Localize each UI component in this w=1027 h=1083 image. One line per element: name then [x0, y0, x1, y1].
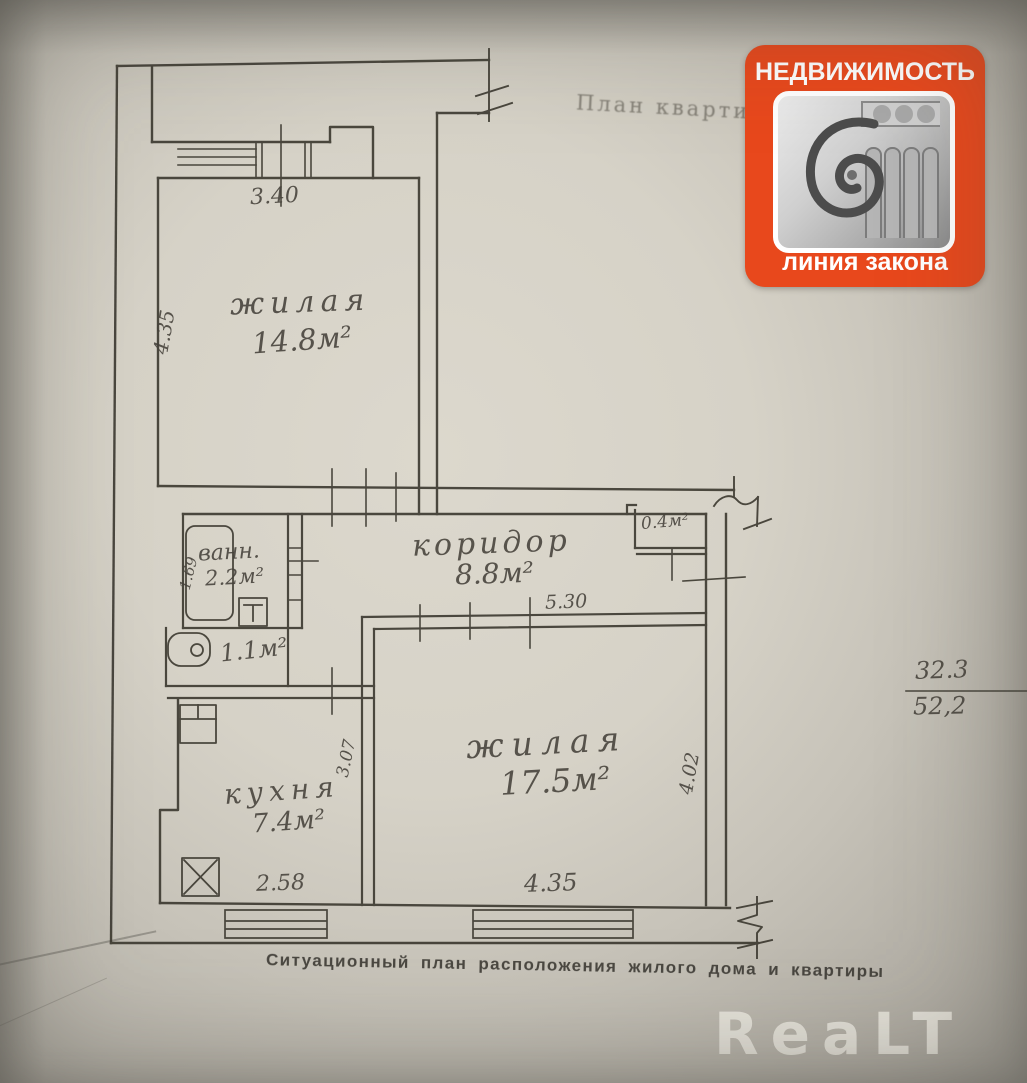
room-wc-area: 1.1м²	[219, 635, 289, 666]
room-bath-label: ванн.	[197, 540, 260, 565]
scanned-floor-plan-photo: План квартиры жилая 14.8м² 3.40 4.35 ван…	[0, 0, 1027, 1083]
agency-badge: НЕДВИЖИМОСТЬ линия закона	[745, 45, 985, 287]
dim-kitchen-width: 2.58	[256, 872, 306, 896]
ionic-column-capital-icon	[773, 91, 955, 253]
room-living1-label: жилая	[230, 286, 371, 321]
dim-living2-width: 4.35	[524, 870, 578, 896]
room-bath-area: 2.2м²	[204, 565, 264, 589]
room-corridor-area: 8.8м²	[455, 559, 535, 590]
area-summary-total: 52,2	[913, 694, 967, 719]
room-living2-area: 17.5м²	[499, 762, 611, 800]
area-summary-living: 32.3	[915, 657, 969, 683]
room-living2-label: жилая	[465, 722, 628, 763]
room-closet-area: 0.4м²	[640, 512, 689, 533]
realt-watermark: ReaLT	[714, 1000, 964, 1068]
dim-corridor-width: 5.30	[545, 592, 588, 612]
agency-badge-subtitle: линия закона	[745, 248, 985, 277]
break-marks	[476, 49, 772, 958]
outer-walls	[111, 60, 758, 943]
windows	[225, 910, 633, 938]
room-kitchen-area: 7.4м²	[251, 806, 326, 837]
room-living1-area: 14.8м²	[251, 323, 353, 359]
dim-balcony-wall: 3.40	[249, 185, 299, 210]
agency-badge-title: НЕДВИЖИМОСТЬ	[745, 58, 985, 87]
